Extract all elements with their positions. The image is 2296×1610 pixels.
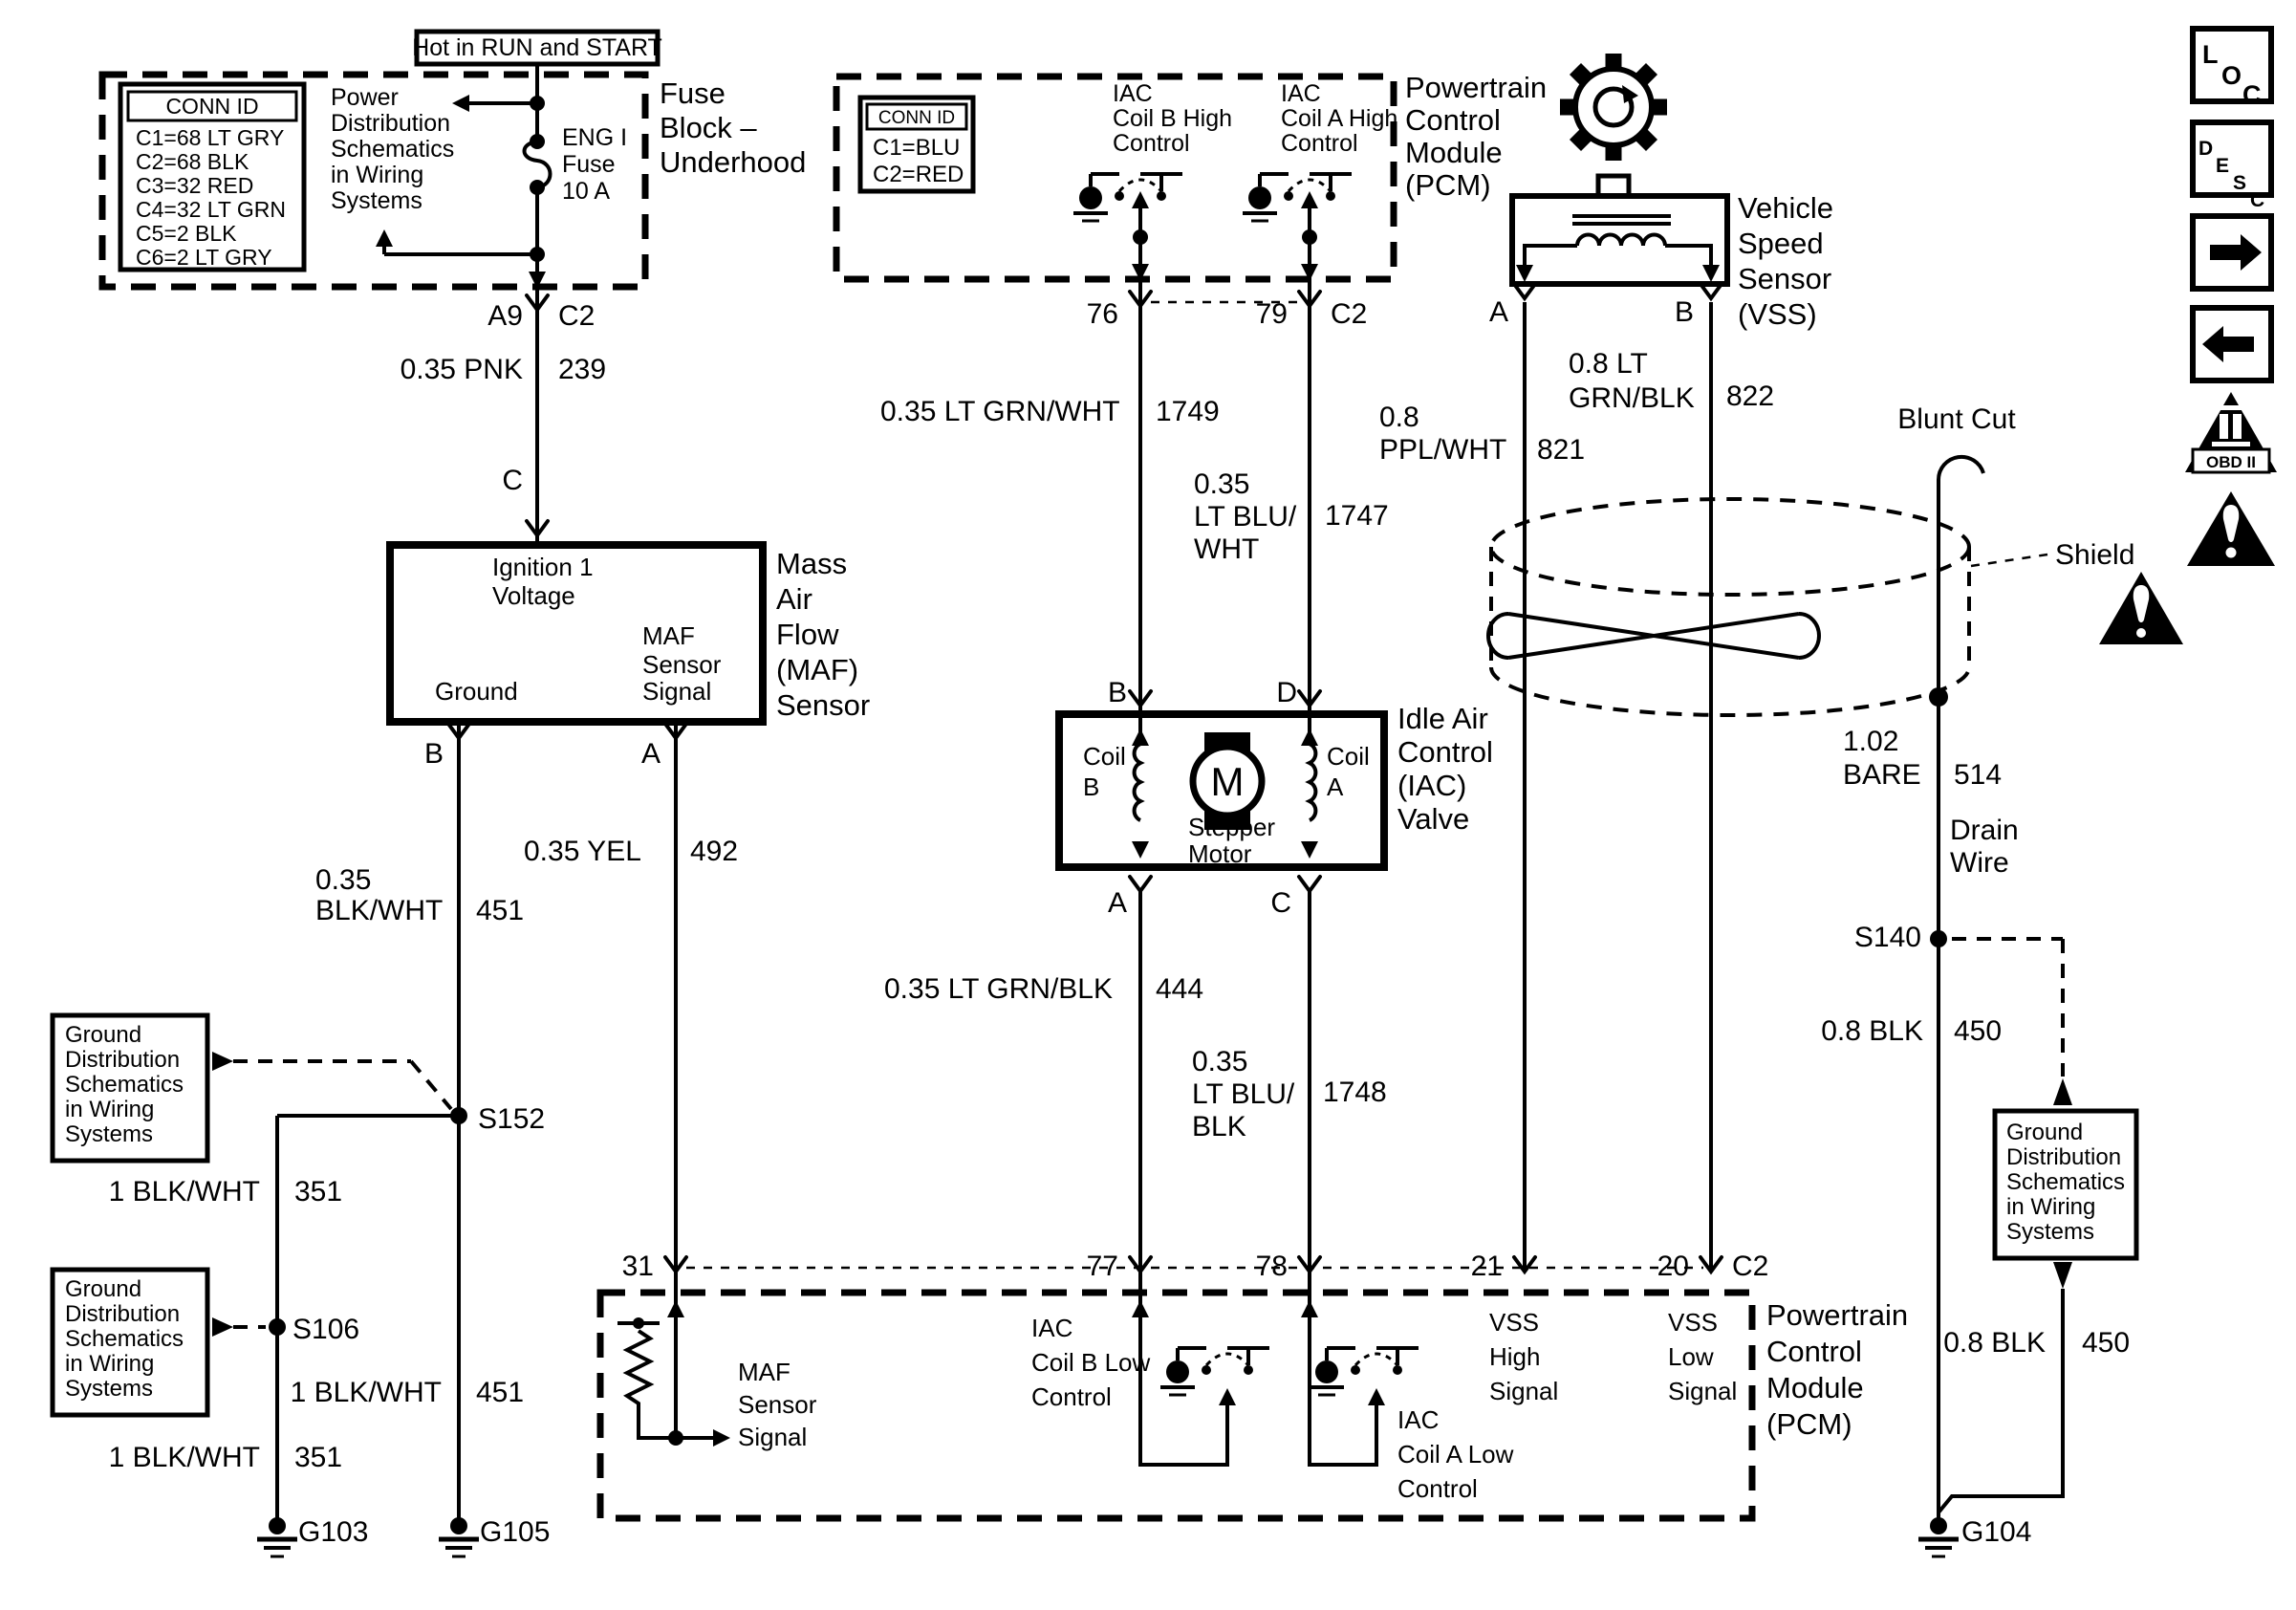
pcm-title: Control <box>1405 103 1501 137</box>
ref-arrow-icon <box>212 1052 233 1071</box>
obd2-badge[interactable]: OBD II <box>2185 392 2277 472</box>
wire-circuit: 239 <box>558 354 606 385</box>
wire-spec: 1 BLK/WHT <box>109 1176 260 1207</box>
wire-circuit: 351 <box>294 1442 342 1473</box>
coil-a-symbol <box>1310 744 1315 820</box>
desc-letter: S <box>2233 172 2246 194</box>
iac-valve-box: Coil B Coil A M Stepper Motor Idle Air C… <box>884 702 1493 1142</box>
vss-title: Vehicle <box>1738 191 1833 225</box>
power-dist-ref: Power <box>331 84 399 111</box>
ground-symbol-g103 <box>257 1517 297 1556</box>
loc-button[interactable]: L O C <box>2193 29 2271 109</box>
fuse-label: Fuse <box>562 151 616 178</box>
loc-letter: O <box>2221 61 2242 90</box>
wire-circuit: 492 <box>690 836 738 867</box>
ref-arrow-icon <box>2053 1262 2072 1289</box>
wire-spec: PPL/WHT <box>1379 434 1506 466</box>
wire-circuit: 451 <box>476 1377 524 1408</box>
pin-c: C <box>1270 887 1291 919</box>
ground-dist-ref-box-s106: Ground Distribution Schematics in Wiring… <box>53 1270 266 1415</box>
vss-title: (VSS) <box>1738 297 1817 331</box>
pcm-title: Module <box>1405 136 1503 169</box>
wire-circuit: 821 <box>1537 434 1585 466</box>
wire-spec: LT BLU/ <box>1194 501 1297 533</box>
pin-a: A <box>1489 296 1508 328</box>
conn-c2: C2 <box>1732 1251 1768 1282</box>
power-dist-arrow-icon <box>376 229 393 247</box>
wire-circuit: 450 <box>1954 1015 2002 1047</box>
ref-line: Distribution <box>65 1301 180 1327</box>
pin-b: B <box>1108 677 1127 708</box>
conn-id-row: C3=32 RED <box>136 173 253 198</box>
pin-77: 77 <box>1087 1251 1118 1282</box>
power-dist-arrow-icon <box>452 95 469 112</box>
ref-line: Ground <box>65 1022 141 1048</box>
vss-high-signal: VSS <box>1489 1308 1539 1337</box>
wire-spec: 1.02 <box>1843 726 1898 757</box>
shield-assembly: Shield <box>1488 499 2183 715</box>
vss-low-signal: Signal <box>1668 1377 1737 1405</box>
pin-31: 31 <box>622 1251 654 1282</box>
prev-page-button[interactable] <box>2193 308 2271 381</box>
iac-coil-b-high: IAC <box>1113 80 1153 107</box>
wire-spec: 1 BLK/WHT <box>291 1377 442 1408</box>
coil-a-label: Coil <box>1327 742 1370 771</box>
ref-arrow-icon <box>2053 1078 2072 1105</box>
pin-79: 79 <box>1256 298 1288 330</box>
wire-circuit: 1749 <box>1156 396 1220 427</box>
splice-s140: S140 <box>1854 922 1921 953</box>
maf-signal-label: Signal <box>642 677 711 706</box>
ground-g104: G104 <box>1961 1516 2031 1548</box>
iac-coil-b-low: Coil B Low <box>1031 1348 1150 1377</box>
caution-badge[interactable] <box>2187 491 2275 566</box>
coil-b-label: Coil <box>1083 742 1126 771</box>
iac-coil-b-low: Control <box>1031 1382 1112 1411</box>
pcm-title: Module <box>1766 1371 1864 1404</box>
ground-wires-left: 0.35 BLK/WHT 451 0.35 YEL 492 S152 S106 … <box>109 722 738 1556</box>
vss-low-signal: Low <box>1668 1342 1714 1371</box>
iac-coil-b-low: IAC <box>1031 1314 1072 1342</box>
wire-spec: 0.35 YEL <box>524 836 641 867</box>
wire-spec: BARE <box>1843 759 1921 791</box>
pin-78: 78 <box>1256 1251 1288 1282</box>
wire-circuit: 514 <box>1954 759 2002 791</box>
blunt-cut-label: Blunt Cut <box>1897 403 2016 435</box>
next-page-button[interactable] <box>2193 216 2271 289</box>
ref-line: Systems <box>65 1376 153 1402</box>
ref-line: in Wiring <box>2006 1194 2095 1220</box>
power-dist-ref: in Wiring <box>331 162 423 188</box>
pin-a: A <box>1108 887 1127 919</box>
pcm-title: Powertrain <box>1405 71 1547 104</box>
maf-signal-label: Sensor <box>738 1390 817 1419</box>
pcm-title: Powertrain <box>1766 1298 1908 1332</box>
ground-dist-ref-box-g104: Ground Distribution Schematics in Wiring… <box>1918 1111 2136 1556</box>
blunt-cut-hook <box>1939 457 1983 491</box>
wire-circuit: 450 <box>2082 1327 2130 1359</box>
ignition-label: Voltage <box>492 581 575 610</box>
maf-signal-label: MAF <box>642 621 695 650</box>
shield-label: Shield <box>2055 539 2134 571</box>
maf-title: Air <box>776 582 812 616</box>
hot-label: Hot in RUN and START <box>412 34 662 61</box>
fuse-block-title: Block – <box>660 111 757 144</box>
wire-spec: BLK/WHT <box>315 895 443 926</box>
pcm-top-box: CONN ID C1=BLU C2=RED IAC Coil B High Co… <box>836 71 1547 330</box>
ref-line: in Wiring <box>65 1097 154 1122</box>
schematic-canvas: Hot in RUN and START CONN ID C1=68 LT GR… <box>0 0 2296 1610</box>
pcm-title: Control <box>1766 1335 1862 1368</box>
conn-id-row: C4=32 LT GRN <box>136 197 286 222</box>
ref-line: Schematics <box>65 1326 184 1352</box>
iac-coil-b-high: Coil B High <box>1113 105 1232 132</box>
iac-title: Control <box>1397 735 1493 769</box>
wire-spec: 0.8 LT <box>1569 348 1648 380</box>
iac-coil-a-high: Coil A High <box>1281 105 1397 132</box>
resistor-symbol <box>627 1331 676 1438</box>
splice-s106: S106 <box>292 1314 359 1345</box>
arrow-left-icon <box>2202 326 2254 362</box>
wire-spec: 0.8 <box>1379 402 1419 433</box>
ground-g105: G105 <box>480 1516 550 1548</box>
ref-line: Ground <box>2006 1120 2083 1145</box>
fuse-label: ENG I <box>562 124 627 151</box>
ref-line: in Wiring <box>65 1351 154 1377</box>
side-toolbar: L O C D E S C OBD II <box>2185 29 2277 566</box>
motor-letter: M <box>1211 759 1245 804</box>
wire-pnk-239: A9 C2 0.35 PNK 239 C <box>401 187 606 545</box>
vss-title: Sensor <box>1738 262 1831 295</box>
iac-title: (IAC) <box>1397 769 1466 802</box>
conn-id-row: C2=RED <box>873 162 964 187</box>
maf-title: Mass <box>776 547 847 580</box>
wire-spec: 1 BLK/WHT <box>109 1442 260 1473</box>
ref-line: Systems <box>65 1121 153 1147</box>
wire-spec: 0.35 PNK <box>401 354 523 385</box>
wire-spec: 0.35 LT GRN/WHT <box>880 396 1120 427</box>
wire-spec: BLK <box>1192 1111 1246 1142</box>
loc-letter: L <box>2202 40 2219 69</box>
drain-wire-label: Drain <box>1950 815 2019 846</box>
maf-signal-label: MAF <box>738 1358 791 1386</box>
wire-spec: 0.35 <box>1194 468 1249 500</box>
conn-id-row: C5=2 BLK <box>136 221 237 246</box>
fuse-label: 10 A <box>562 178 610 205</box>
pcm-title: (PCM) <box>1405 168 1491 202</box>
ground-dist-ref-box-s152: Ground Distribution Schematics in Wiring… <box>53 1015 451 1161</box>
iac-coil-a-high: IAC <box>1281 80 1321 107</box>
iac-coil-a-low: Coil A Low <box>1397 1440 1514 1469</box>
maf-title: Sensor <box>776 688 870 722</box>
ground-symbol-g104 <box>1918 1517 1959 1556</box>
pin-a9: A9 <box>487 300 523 332</box>
stepper-motor-label: Stepper <box>1188 813 1275 841</box>
wire-spec: 0.8 BLK <box>1821 1015 1923 1047</box>
wire-circuit: 822 <box>1726 381 1774 412</box>
wire-spec: 0.35 LT GRN/BLK <box>884 973 1113 1005</box>
wire-circuit: 351 <box>294 1176 342 1207</box>
wire-spec: 0.8 BLK <box>1943 1327 2046 1359</box>
maf-sensor-box: Ignition 1 Voltage Ground MAF Sensor Sig… <box>390 545 870 770</box>
reluctor-gear-icon <box>1575 69 1652 145</box>
driver-symbol <box>1310 1348 1419 1395</box>
hot-in-run-start-callout: Hot in RUN and START <box>412 32 662 64</box>
pin-c: C <box>502 465 523 496</box>
vss-low-signal: VSS <box>1668 1308 1718 1337</box>
conn-c2: C2 <box>1331 298 1367 330</box>
ground-symbol-g105 <box>439 1517 479 1556</box>
conn-id-row: C6=2 LT GRY <box>136 245 272 270</box>
wire-spec: 0.35 <box>1192 1046 1247 1077</box>
wiring-diagram-page: Hot in RUN and START CONN ID C1=68 LT GR… <box>0 0 2296 1610</box>
pin-d: D <box>1276 677 1297 708</box>
maf-signal-label: Sensor <box>642 650 722 679</box>
splice-s152: S152 <box>478 1103 545 1135</box>
wire-circuit: 1748 <box>1323 1077 1387 1108</box>
wire-circuit: 444 <box>1156 973 1203 1005</box>
ground-g103: G103 <box>298 1516 368 1548</box>
pickup-coil-symbol <box>1577 235 1665 247</box>
fuse-block-underhood: CONN ID C1=68 LT GRY C2=68 BLK C3=32 RED… <box>102 62 806 287</box>
power-dist-ref: Systems <box>331 187 422 214</box>
ref-arrow-icon <box>212 1317 233 1337</box>
wire-spec: LT BLU/ <box>1192 1078 1295 1110</box>
pin-76: 76 <box>1087 298 1118 330</box>
ref-line: Schematics <box>2006 1169 2125 1195</box>
pin-c2: C2 <box>558 300 595 332</box>
wire-spec: GRN/BLK <box>1569 382 1695 414</box>
fuse-block-title: Underhood <box>660 145 806 179</box>
pin-b: B <box>1675 296 1694 328</box>
driver-symbol <box>1160 1348 1269 1395</box>
ref-line: Systems <box>2006 1219 2094 1245</box>
driver-symbol <box>1243 174 1352 221</box>
wire-spec: 0.35 <box>315 864 371 896</box>
iac-coil-a-low: Control <box>1397 1474 1478 1503</box>
fuse-block-title: Fuse <box>660 76 726 110</box>
coil-b-symbol <box>1135 744 1140 820</box>
wire-circuit: 1747 <box>1325 500 1389 532</box>
ground-label: Ground <box>435 677 518 706</box>
conn-id-row: C2=68 BLK <box>136 149 249 174</box>
ref-line: Ground <box>65 1276 141 1302</box>
conn-id-row: C1=BLU <box>873 135 960 161</box>
driver-symbol <box>1073 174 1182 221</box>
vss-high-signal: High <box>1489 1342 1540 1371</box>
desc-button[interactable]: D E S C <box>2193 122 2271 211</box>
drain-wire-label: Wire <box>1950 847 2009 879</box>
maf-signal-label: Signal <box>738 1423 807 1451</box>
conn-id-title: CONN ID <box>165 94 258 119</box>
ref-line: Schematics <box>65 1072 184 1098</box>
vss-title: Speed <box>1738 227 1824 260</box>
conn-id-title: CONN ID <box>878 108 955 128</box>
wire-circuit: 451 <box>476 895 524 926</box>
pin-a: A <box>641 738 661 770</box>
pin-21: 21 <box>1471 1251 1503 1282</box>
coil-b-label: B <box>1083 772 1099 801</box>
power-dist-ref: Schematics <box>331 136 454 163</box>
iac-coil-b-high: Control <box>1113 130 1190 157</box>
wire-spec: WHT <box>1194 533 1259 565</box>
ref-line: Distribution <box>2006 1144 2121 1170</box>
pin-20: 20 <box>1657 1251 1689 1282</box>
arrow-right-icon <box>2210 234 2262 271</box>
obd2-label: OBD II <box>2206 453 2256 471</box>
vss-high-signal: Signal <box>1489 1377 1558 1405</box>
iac-title: Idle Air <box>1397 702 1488 735</box>
stepper-motor-label: Motor <box>1188 839 1252 868</box>
desc-letter: D <box>2199 138 2213 160</box>
iac-coil-a-low: IAC <box>1397 1405 1439 1434</box>
coil-a-label: A <box>1327 772 1344 801</box>
conn-id-row: C1=68 LT GRY <box>136 125 284 150</box>
loc-letter: C <box>2242 80 2262 109</box>
twisted-pair-symbol <box>1488 614 1819 658</box>
ignition-label: Ignition 1 <box>492 553 594 581</box>
pin-b: B <box>424 738 444 770</box>
desc-letter: C <box>2250 189 2264 211</box>
power-dist-ref: Distribution <box>331 110 450 137</box>
iac-title: Valve <box>1397 802 1469 836</box>
ref-line: Distribution <box>65 1047 180 1073</box>
maf-title: (MAF) <box>776 653 858 686</box>
desc-letter: E <box>2216 155 2229 177</box>
iac-coil-a-high: Control <box>1281 130 1358 157</box>
pcm-title: (PCM) <box>1766 1407 1852 1441</box>
maf-title: Flow <box>776 618 839 651</box>
